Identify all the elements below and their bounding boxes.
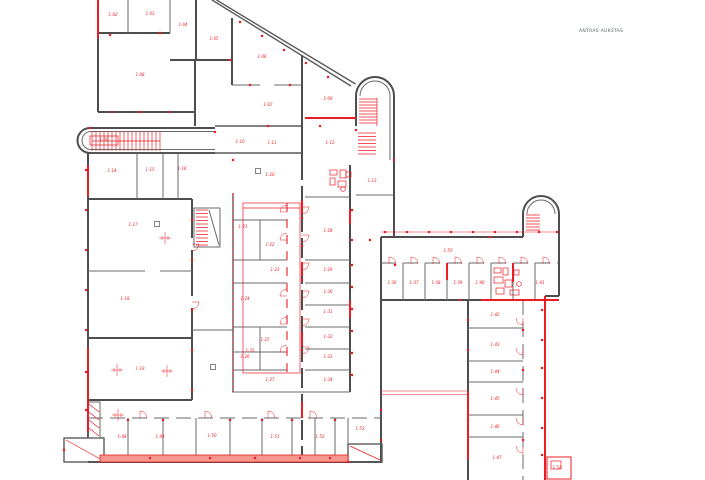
- room-label: 1-03: [145, 11, 155, 16]
- room-label: 1-04: [178, 22, 188, 27]
- dim-tick: [428, 231, 430, 233]
- door-arc: [302, 263, 309, 270]
- crosshair-mark: [161, 365, 173, 377]
- room-label: 1-10: [235, 139, 245, 144]
- door-arc: [280, 205, 287, 212]
- door-arc: [302, 291, 309, 298]
- dim-tick: [85, 169, 87, 171]
- dim-tick: [467, 419, 469, 421]
- bathroom-fixtures-wing: [494, 268, 521, 295]
- door-arc: [302, 319, 309, 326]
- room-label: 1-33: [323, 354, 333, 359]
- room-label: 1-18: [120, 296, 130, 301]
- room-label: 1-23: [270, 267, 280, 272]
- dim-tick: [111, 111, 113, 113]
- door-arc: [280, 233, 287, 240]
- survey-marks: [111, 169, 261, 422]
- dim-tick: [169, 111, 171, 113]
- dim-tick: [301, 279, 303, 281]
- room-label: 1-19: [135, 366, 145, 371]
- dim-tick: [351, 264, 353, 266]
- room-label: 1-05: [209, 36, 219, 41]
- dim-tick: [380, 439, 382, 441]
- dim-tick: [85, 409, 87, 411]
- dim-tick: [301, 217, 303, 219]
- door-arc: [302, 207, 309, 214]
- dim-tick: [516, 231, 518, 233]
- room-label: 1-16: [177, 166, 187, 171]
- dim-tick: [541, 309, 543, 311]
- dim-tick: [319, 125, 321, 127]
- room-label: 1-17: [128, 222, 138, 227]
- dim-tick: [209, 457, 211, 459]
- dim-tick: [139, 111, 141, 113]
- column-marker: [211, 365, 216, 370]
- room-label: 1-41: [535, 280, 544, 285]
- stair-hatch: [359, 99, 377, 123]
- sheet-note: ANTRAS AUKŠTAS: [579, 29, 623, 34]
- room-label: 1-26: [240, 354, 250, 359]
- dim-tick: [522, 369, 524, 371]
- diagonal-wall: [212, 0, 356, 86]
- floor-plan-page: 1-021-031-041-051-061-071-081-091-101-11…: [0, 0, 705, 480]
- room-label: 1-38: [431, 280, 441, 285]
- dim-tick: [162, 419, 164, 421]
- room-label: 1-28: [323, 228, 333, 233]
- dim-tick: [450, 231, 452, 233]
- dim-tick: [85, 371, 87, 373]
- dim-tick: [489, 236, 491, 238]
- dim-tick: [289, 84, 291, 86]
- hatch-strip: [88, 402, 100, 438]
- dim-tick: [299, 457, 301, 459]
- room-label: 1-29: [323, 267, 333, 272]
- stair-tower-right: [523, 196, 559, 214]
- room-label: 1-12: [325, 140, 335, 145]
- dim-tick: [406, 231, 408, 233]
- dim-tick: [467, 319, 469, 321]
- dim-tick: [127, 419, 129, 421]
- dimension-lines: [381, 232, 559, 395]
- dim-tick: [472, 231, 474, 233]
- dim-tick: [89, 127, 91, 129]
- crosshair-mark: [111, 364, 123, 376]
- stair-hatch: [358, 133, 376, 154]
- dim-tick: [334, 419, 336, 421]
- dim-tick: [351, 209, 353, 211]
- dimension-ticks: [63, 21, 558, 463]
- dim-tick: [85, 209, 87, 211]
- room-label: 1-11: [267, 140, 276, 145]
- room-label: 1-07: [263, 102, 273, 107]
- dim-tick: [351, 239, 353, 241]
- stair-hatch: [196, 210, 208, 245]
- dim-tick: [109, 34, 111, 36]
- dim-tick: [541, 339, 543, 341]
- dim-tick: [467, 349, 469, 351]
- door-arc: [192, 302, 199, 309]
- door-arc: [280, 289, 287, 296]
- room-labels: 1-021-031-041-051-061-071-081-091-101-11…: [99, 11, 562, 470]
- dim-tick: [283, 49, 285, 51]
- dim-tick: [159, 32, 161, 34]
- stair-tower-top: [356, 77, 394, 96]
- dim-tick: [541, 367, 543, 369]
- room-label: 1-27: [265, 377, 275, 382]
- room-label: 1-32: [323, 334, 333, 339]
- dim-tick: [351, 352, 353, 354]
- room-label: 1-02: [108, 12, 118, 17]
- dim-tick: [394, 264, 396, 266]
- dim-tick: [494, 231, 496, 233]
- room-label: 1-49: [155, 434, 165, 439]
- dim-tick: [541, 397, 543, 399]
- dim-tick: [351, 330, 353, 332]
- room-label: 1-53: [355, 426, 365, 431]
- room-label: 1-34: [323, 377, 333, 382]
- door-arc: [205, 411, 212, 418]
- crosshair-mark: [112, 409, 124, 421]
- door-arc: [140, 411, 147, 418]
- room-label: 1-51: [270, 434, 279, 439]
- dim-tick: [191, 219, 193, 221]
- door-arc: [280, 345, 287, 352]
- dim-tick: [191, 389, 193, 391]
- dim-tick: [267, 125, 269, 127]
- crosshair-mark: [159, 232, 171, 244]
- room-label: 1-48: [117, 434, 127, 439]
- door-arc: [516, 446, 523, 453]
- room-label: 1-09: [323, 96, 333, 101]
- dim-tick: [261, 419, 263, 421]
- room-label: 1-35: [245, 348, 255, 353]
- dim-tick: [63, 449, 65, 451]
- room-label: 1-52: [315, 434, 325, 439]
- dim-tick: [149, 457, 151, 459]
- dim-tick: [369, 239, 371, 241]
- room-label: 1-25: [260, 337, 270, 342]
- room-label: 1-20: [265, 172, 275, 177]
- room-label: 1-08: [135, 72, 145, 77]
- dim-tick: [538, 231, 540, 233]
- stair-hatch: [526, 215, 540, 230]
- dim-tick: [393, 159, 395, 161]
- dim-tick: [291, 419, 293, 421]
- room-label: 1-24: [240, 296, 250, 301]
- door-arcs: [140, 205, 550, 453]
- column-marker: [256, 169, 261, 174]
- dim-tick: [239, 21, 241, 23]
- dim-tick: [351, 308, 353, 310]
- dim-tick: [191, 349, 193, 351]
- dim-tick: [522, 439, 524, 441]
- dim-tick: [459, 299, 461, 301]
- column-marker: [155, 222, 160, 227]
- door-arc: [280, 317, 287, 324]
- door-arc: [516, 318, 523, 325]
- room-label: 1-46: [490, 424, 500, 429]
- dim-tick: [85, 249, 87, 251]
- room-label: 1-42: [490, 312, 500, 317]
- dim-tick: [305, 62, 307, 64]
- dim-tick: [191, 259, 193, 261]
- dim-tick: [229, 419, 231, 421]
- dim-tick: [327, 76, 329, 78]
- dim-tick: [384, 231, 386, 233]
- door-arc: [302, 235, 309, 242]
- dim-tick: [556, 231, 558, 233]
- room-label: 1-43: [490, 342, 500, 347]
- room-label: 1-54: [552, 465, 562, 470]
- room-label: 1-55: [443, 248, 453, 253]
- dim-tick: [351, 286, 353, 288]
- room-label: 1-14: [107, 168, 117, 173]
- room-label: 1-36: [387, 280, 397, 285]
- dim-tick: [85, 329, 87, 331]
- room-label: 1-13: [367, 178, 377, 183]
- highlighted-base-wall: [100, 455, 348, 462]
- dim-tick: [355, 129, 357, 131]
- dim-tick: [351, 374, 353, 376]
- room-label: 1-31: [323, 309, 332, 314]
- dim-tick: [541, 427, 543, 429]
- bathroom-fixtures-top: [330, 170, 351, 191]
- dim-tick: [85, 289, 87, 291]
- door-arc: [310, 411, 317, 418]
- dim-tick: [347, 461, 349, 463]
- room-label: 1-22: [265, 242, 275, 247]
- dim-tick: [249, 84, 251, 86]
- dim-tick: [541, 454, 543, 456]
- door-arc: [516, 348, 523, 355]
- room-label: 1-56: [99, 137, 109, 142]
- dim-tick: [214, 131, 216, 133]
- door-arc: [268, 411, 275, 418]
- room-label: 1-37: [409, 280, 419, 285]
- dim-tick: [301, 245, 303, 247]
- door-arc: [516, 388, 523, 395]
- dim-tick: [329, 457, 331, 459]
- room-label: 1-40: [475, 280, 485, 285]
- dim-tick: [232, 159, 234, 161]
- room-label: 1-45: [490, 396, 500, 401]
- room-label: 1-39: [453, 280, 463, 285]
- room-label: 1-15: [145, 167, 155, 172]
- dim-tick: [301, 349, 303, 351]
- floor-plan-canvas: 1-021-031-041-051-061-071-081-091-101-11…: [0, 0, 705, 480]
- dim-tick: [229, 59, 231, 61]
- dim-tick: [261, 35, 263, 37]
- door-arc: [516, 418, 523, 425]
- dim-tick: [380, 409, 382, 411]
- dim-tick: [254, 457, 256, 459]
- partition-walls: [88, 0, 559, 480]
- ramp-diagonals: [66, 404, 380, 460]
- room-label: 1-50: [207, 433, 217, 438]
- room-label: 1-44: [490, 369, 500, 374]
- room-label: 1-47: [492, 455, 502, 460]
- room-label: 1-30: [323, 289, 333, 294]
- room-label: 1-21: [238, 224, 247, 229]
- room-label: 1-06: [257, 54, 267, 59]
- dim-tick: [522, 329, 524, 331]
